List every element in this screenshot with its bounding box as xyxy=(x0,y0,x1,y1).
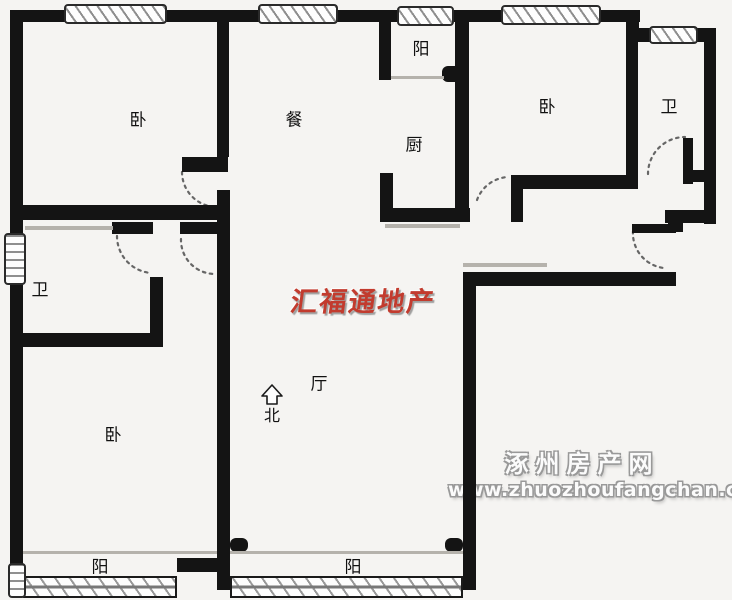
label-balcony-bottom-left: 阳 xyxy=(92,553,109,578)
line-balcony-left-door xyxy=(23,551,217,554)
window-top-2 xyxy=(258,4,338,24)
window-top-1 xyxy=(64,4,167,24)
north-label: 北 xyxy=(264,402,280,426)
line-balcony-top-door xyxy=(391,76,444,79)
wall-dining-balcony-divider xyxy=(379,10,391,80)
knob-divider-left xyxy=(230,538,248,552)
wall-bedroom-tr-bottom xyxy=(523,175,638,189)
door-arc-bath-left xyxy=(117,236,151,273)
wall-bedroom-tr-door-stub xyxy=(511,175,523,222)
wall-bedroom-tl-bottom xyxy=(10,205,228,220)
wall-divider-left xyxy=(217,190,230,590)
window-bath-tr xyxy=(649,26,698,44)
site-watermark-name: 涿州房产网 xyxy=(448,451,716,479)
window-balcony-mid xyxy=(230,576,463,598)
door-arc-bedroom-tr xyxy=(477,177,508,200)
label-bedroom-top-right: 卧 xyxy=(539,93,556,118)
line-bath-left-top xyxy=(25,226,113,230)
window-left-bath xyxy=(4,233,26,285)
window-corner-bl xyxy=(8,563,26,598)
wall-bedroom-tl-door-stub xyxy=(182,157,228,172)
label-bedroom-bottom-left: 卧 xyxy=(105,421,122,446)
window-top-3 xyxy=(397,6,454,26)
wall-right-outer xyxy=(704,28,716,224)
window-balcony-left xyxy=(23,576,177,598)
label-living: 厅 xyxy=(311,370,328,395)
wall-entry-door-leaf xyxy=(632,224,676,233)
label-dining: 餐 xyxy=(286,106,303,131)
line-kitchen-shadow xyxy=(385,224,460,228)
site-watermark: 涿州房产网 www.zhuozhoufangchan.com xyxy=(448,451,716,501)
door-arc-entry xyxy=(633,231,664,268)
wall-bath-tr-left xyxy=(626,10,638,182)
label-bedroom-top-left: 卧 xyxy=(130,106,147,131)
wall-hall-stub-left xyxy=(112,222,153,234)
wall-bath-left-bottom xyxy=(20,333,163,347)
wall-kitchen-bedroom-divider xyxy=(455,10,469,222)
label-bath-top-right: 卫 xyxy=(661,93,678,118)
wall-balcony-left-stub xyxy=(177,558,217,572)
label-kitchen: 厨 xyxy=(406,131,423,156)
wall-living-top-right xyxy=(463,272,676,286)
line-living-tr-shadow xyxy=(463,263,547,267)
knob-living-right xyxy=(445,538,463,552)
agency-watermark: 汇福通地产 xyxy=(288,280,438,319)
floor-plan: 北 汇福通地产 涿州房产网 www.zhuozhoufangchan.com 卧… xyxy=(0,0,732,600)
wall-living-right xyxy=(463,272,476,590)
label-bath-left: 卫 xyxy=(32,276,49,301)
label-balcony-bottom-mid: 阳 xyxy=(345,553,362,578)
window-top-4 xyxy=(501,5,601,25)
wall-bedroom-tl-right xyxy=(217,10,229,157)
label-balcony-top: 阳 xyxy=(413,35,430,60)
wall-bath-tr-stub-h xyxy=(687,170,716,182)
wall-left-outer xyxy=(10,10,23,578)
door-arc-bath-tr xyxy=(648,137,685,174)
door-arc-hall xyxy=(181,239,215,274)
site-watermark-url: www.zhuozhoufangchan.com xyxy=(448,479,716,501)
door-arc-bedroom-tl xyxy=(182,172,217,207)
knob-kitchen-balcony xyxy=(442,66,461,82)
